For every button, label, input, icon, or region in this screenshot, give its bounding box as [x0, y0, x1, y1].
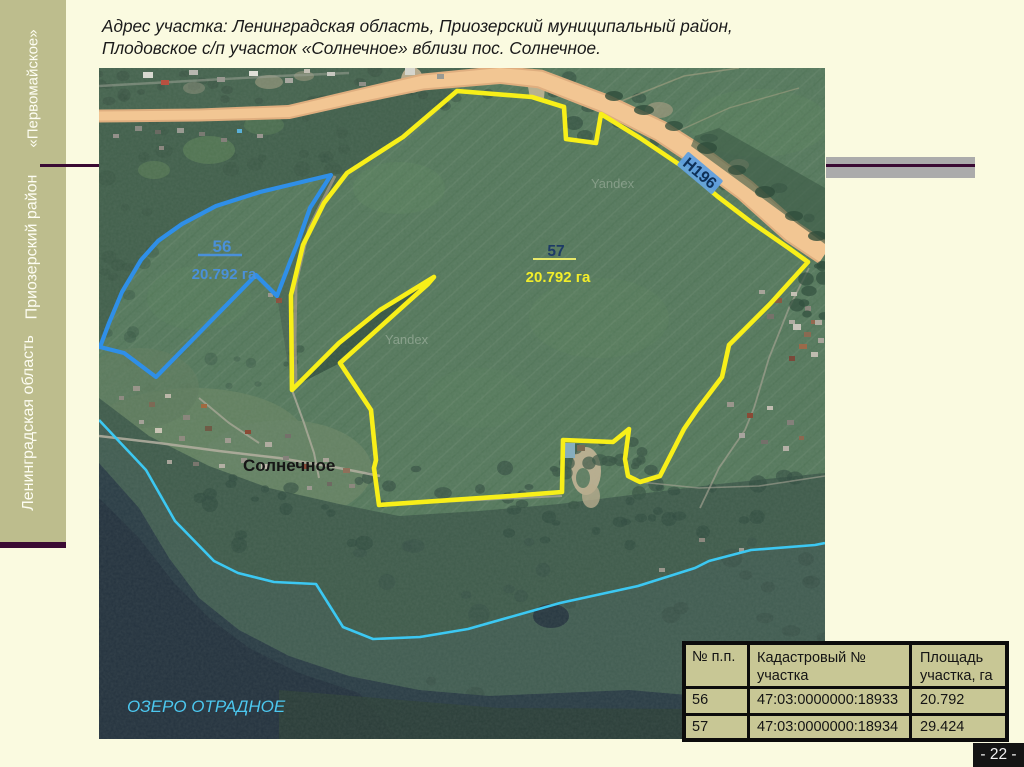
svg-text:Yandex: Yandex: [591, 176, 635, 191]
svg-text:ОЗЕРО ОТРАДНОЕ: ОЗЕРО ОТРАДНОЕ: [127, 697, 286, 716]
svg-text:20.792 га: 20.792 га: [526, 269, 591, 286]
svg-text:Yandex: Yandex: [385, 332, 429, 347]
svg-text:Солнечное: Солнечное: [243, 456, 335, 475]
svg-text:20.792 га: 20.792 га: [192, 266, 257, 283]
svg-text:57: 57: [547, 243, 564, 260]
svg-text:56: 56: [213, 237, 232, 256]
